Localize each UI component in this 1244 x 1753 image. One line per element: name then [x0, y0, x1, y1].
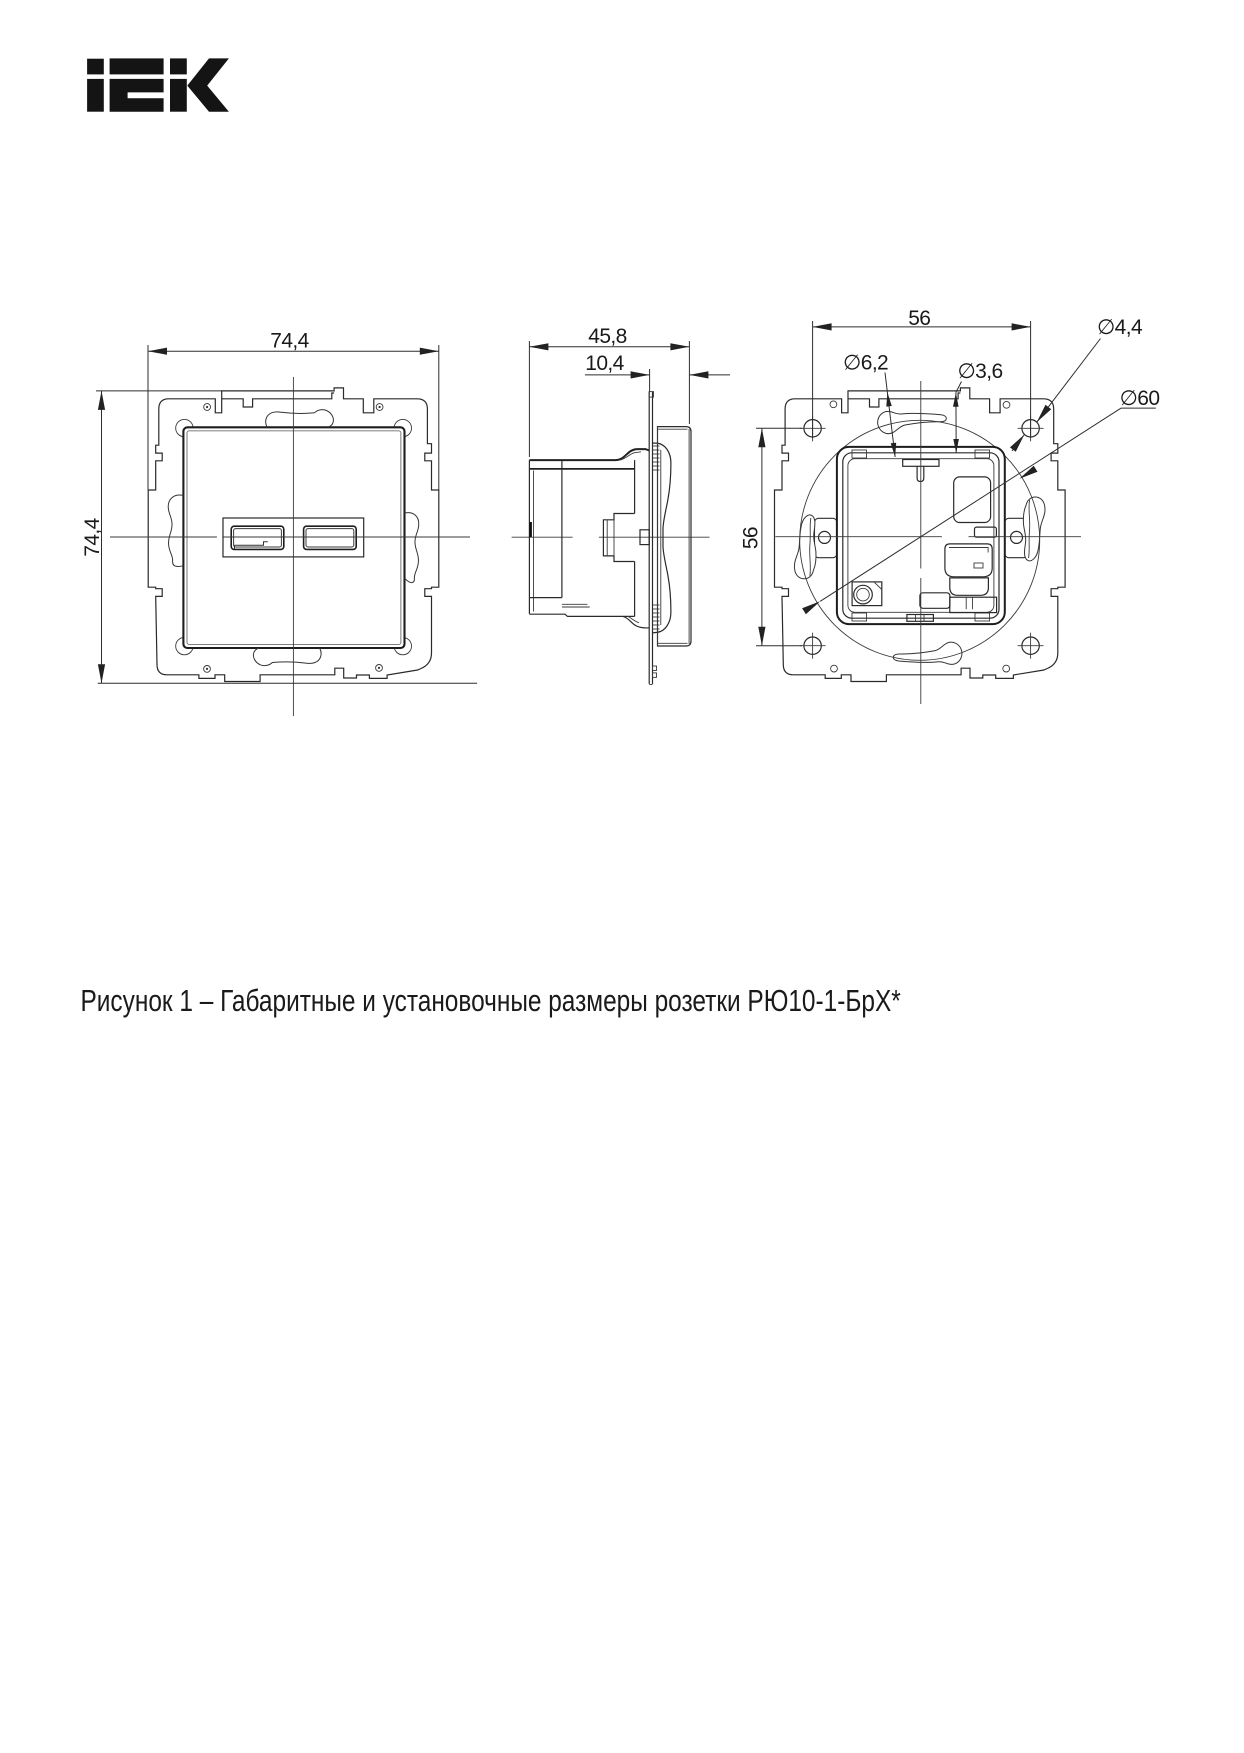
svg-text:10,4: 10,4 [585, 352, 624, 375]
svg-text:74,4: 74,4 [270, 330, 309, 353]
svg-text:∅3,6: ∅3,6 [957, 360, 1002, 383]
svg-text:∅60: ∅60 [1120, 387, 1160, 410]
svg-text:∅4,4: ∅4,4 [1097, 316, 1143, 339]
svg-text:∅6,2: ∅6,2 [843, 352, 888, 375]
svg-text:45,8: 45,8 [588, 325, 626, 348]
svg-text:Рисунок 1 – Габаритные и устан: Рисунок 1 – Габаритные и установочные ра… [81, 983, 901, 1017]
svg-text:56: 56 [740, 527, 763, 549]
svg-text:74,4: 74,4 [81, 517, 104, 556]
